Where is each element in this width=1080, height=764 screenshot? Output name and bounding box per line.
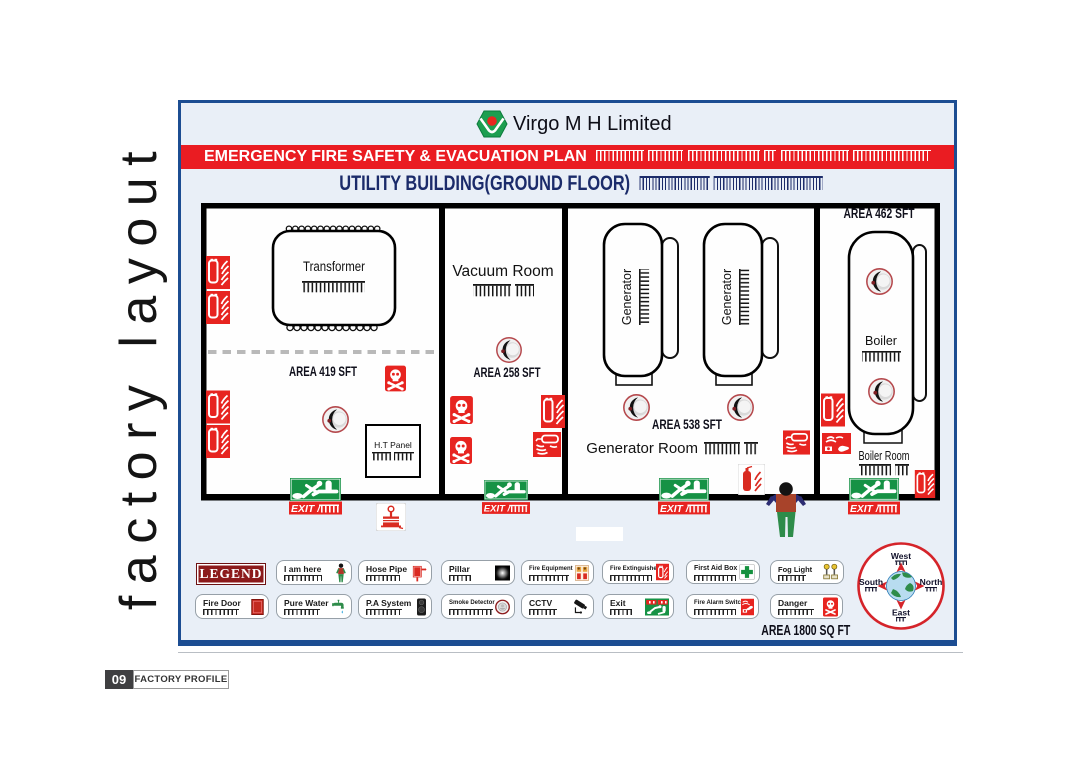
svg-text:Generator: Generator <box>620 269 634 325</box>
svg-text:Generator Room: Generator Room <box>586 440 698 457</box>
svg-text:AREA 419 SFT: AREA 419 SFT <box>289 364 358 379</box>
svg-text:Boiler Room: Boiler Room <box>859 449 910 463</box>
svg-text:West: West <box>891 551 911 561</box>
svg-text:AREA 538 SFT: AREA 538 SFT <box>652 417 723 432</box>
svg-text:North: North <box>920 577 943 587</box>
svg-text:AREA 462 SFT: AREA 462 SFT <box>844 206 916 221</box>
svg-text:South: South <box>859 577 883 587</box>
svg-text:East: East <box>892 608 910 618</box>
svg-text:H.T Panel: H.T Panel <box>374 440 412 450</box>
svg-text:Transformer: Transformer <box>303 259 365 274</box>
svg-text:Generator: Generator <box>720 269 734 325</box>
svg-text:AREA 258 SFT: AREA 258 SFT <box>474 365 542 380</box>
svg-text:Boiler: Boiler <box>865 334 897 348</box>
svg-text:Vacuum Room: Vacuum Room <box>452 263 553 280</box>
